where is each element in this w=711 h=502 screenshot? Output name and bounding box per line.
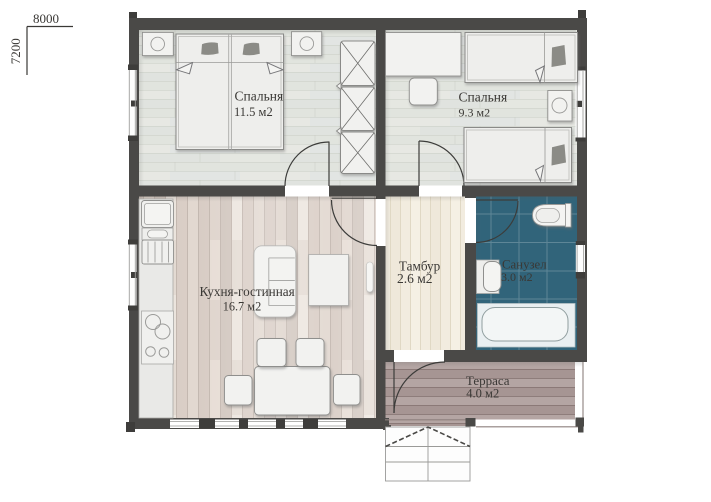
svg-text:7200: 7200 [8, 38, 23, 64]
svg-text:Кухня-гостинная: Кухня-гостинная [200, 284, 295, 299]
svg-text:11.5 м2: 11.5 м2 [234, 105, 273, 119]
svg-text:9.3 м2: 9.3 м2 [459, 106, 491, 120]
svg-text:Спальня: Спальня [235, 89, 284, 104]
svg-text:Спальня: Спальня [459, 90, 508, 105]
svg-text:8000: 8000 [33, 11, 59, 26]
svg-text:4.0 м2: 4.0 м2 [466, 387, 499, 401]
svg-text:2.6 м2: 2.6 м2 [397, 271, 433, 286]
svg-text:3.0 м2: 3.0 м2 [501, 270, 533, 284]
svg-text:16.7 м2: 16.7 м2 [223, 300, 262, 314]
